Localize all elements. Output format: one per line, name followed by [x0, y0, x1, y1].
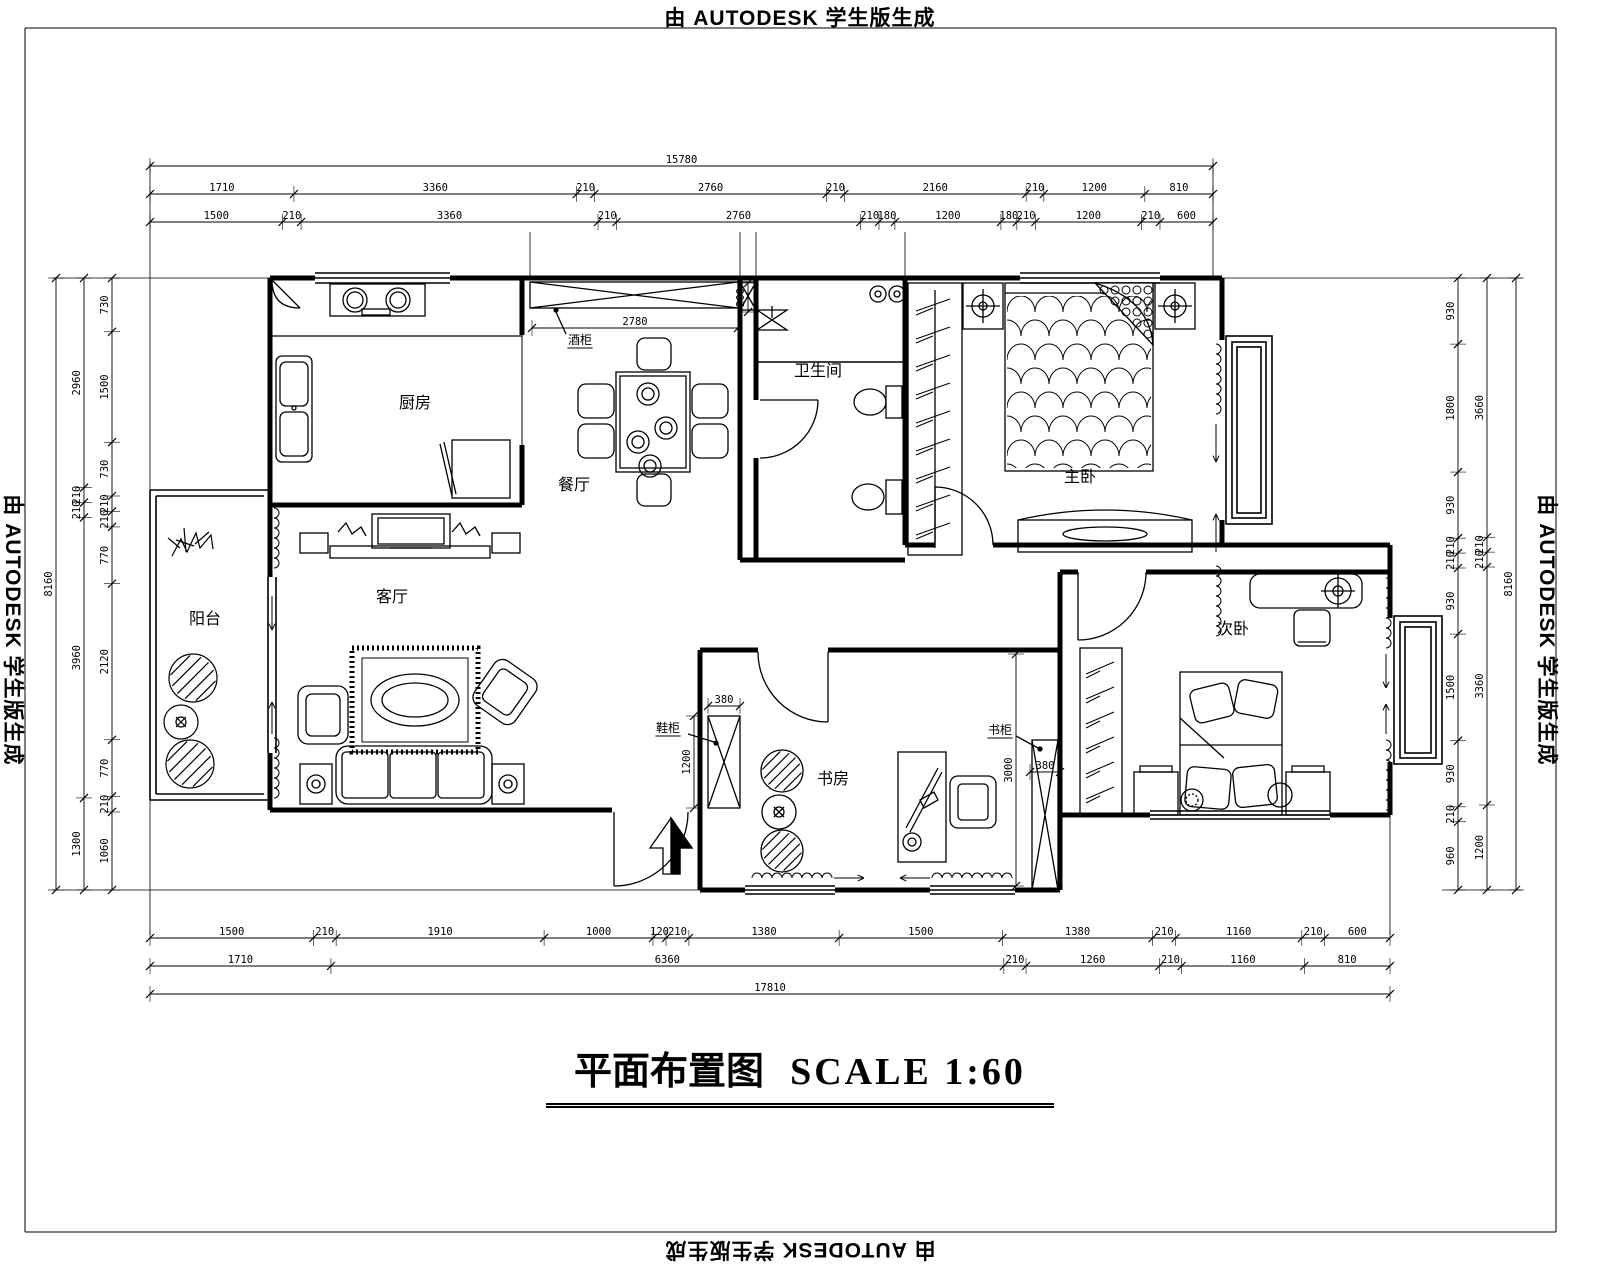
dim-label: 930: [1445, 592, 1457, 611]
dim-label: 120: [650, 926, 669, 938]
dim-line: [1086, 787, 1114, 799]
dim-label: 2120: [99, 649, 111, 674]
dim-label: 180: [999, 210, 1018, 222]
pillow: [1232, 764, 1278, 808]
dim-line: [916, 476, 933, 483]
gas-valve: [757, 306, 787, 330]
dim-label: 930: [1445, 764, 1457, 783]
dim-line: [916, 336, 933, 343]
chair-wheel: [903, 833, 921, 851]
chair: [692, 384, 728, 418]
dim-label: 210: [1005, 954, 1024, 966]
dim-label: 210: [1474, 550, 1486, 569]
keyboard: [920, 792, 938, 808]
dim-label: 2760: [698, 182, 723, 194]
dim-line: [764, 833, 789, 858]
dim-label: 210: [668, 926, 687, 938]
bathroom-door: [760, 400, 818, 458]
decor-right: [452, 523, 480, 536]
dim-line: [1086, 721, 1100, 728]
dim-label: 2780: [622, 316, 647, 328]
dim-label: 1500: [1445, 675, 1457, 700]
dim-line: [775, 844, 800, 869]
chair: [578, 424, 614, 458]
second-bedroom-door: [1078, 572, 1146, 640]
curtain-squiggle: [752, 873, 832, 878]
dim-label: 8160: [43, 571, 55, 596]
plant: [168, 528, 213, 556]
dim-line: [169, 743, 198, 772]
dim-line: [916, 439, 950, 451]
dim-line: [916, 383, 950, 395]
dim-label: 210: [826, 182, 845, 194]
dim-label: 210: [1017, 210, 1036, 222]
decor-left: [338, 523, 366, 536]
dim-line: [762, 751, 780, 769]
stove: [330, 284, 425, 316]
dim-line: [1086, 762, 1114, 774]
dim-line: [916, 308, 933, 315]
chair: [692, 424, 728, 458]
dim-line: [196, 681, 216, 701]
dim-label: 380: [1036, 760, 1055, 772]
cad-drawing-canvas: 由 AUTODESK 学生版生成 由 AUTODESK 学生版生成 由 AUTO…: [0, 0, 1600, 1280]
dim-label: 210: [282, 210, 301, 222]
dim-label: 810: [1338, 954, 1357, 966]
room-label: 客厅: [376, 588, 408, 606]
dim-label: 1260: [1080, 954, 1105, 966]
dim-label: 210: [860, 210, 879, 222]
dim-line: [1086, 671, 1100, 678]
sink: [276, 356, 312, 462]
pillow: [1188, 682, 1235, 725]
dim-line: [916, 523, 950, 535]
monitor: [906, 768, 942, 832]
dim-label: 180: [877, 210, 896, 222]
wardrobe: [1080, 648, 1122, 815]
dim-line: [172, 657, 201, 686]
dim-label: 730: [99, 460, 111, 479]
room-label: 阳台: [189, 610, 221, 628]
dim-label: 3360: [437, 210, 462, 222]
toilet-tank: [886, 386, 902, 418]
dim-line: [764, 753, 789, 778]
kitchen-window: [315, 273, 450, 283]
room-label: 厨房: [399, 394, 431, 412]
coffee-table: [371, 674, 459, 726]
dim-line: [916, 504, 933, 511]
dim-label: 1380: [1065, 926, 1090, 938]
dim-label: 6360: [655, 954, 680, 966]
dim-label: 210: [71, 500, 83, 519]
dim-line: [916, 411, 950, 423]
dim-line: [1086, 771, 1100, 778]
room-label: 次卧: [1217, 620, 1249, 638]
dim-label: 2760: [726, 210, 751, 222]
dim-label: 3360: [423, 182, 448, 194]
study-door: [758, 652, 828, 722]
dim-label: 1500: [908, 926, 933, 938]
toilet: [854, 389, 886, 415]
dim-label: 15780: [666, 154, 698, 166]
dim-label: 960: [1445, 846, 1457, 865]
dim-line: [916, 467, 950, 479]
water-heater: [870, 286, 886, 302]
dim-line: [177, 662, 208, 693]
side-table: [300, 764, 332, 804]
dim-label: 770: [99, 546, 111, 565]
dim-line: [916, 327, 950, 339]
dim-line: [167, 741, 187, 761]
dim-line: [769, 758, 796, 785]
dim-label: 1200: [1076, 210, 1101, 222]
dim-label: 210: [1026, 182, 1045, 194]
dim-line: [769, 838, 796, 865]
room-label: 书房: [817, 770, 849, 788]
dim-line: [1086, 796, 1100, 803]
dim-label: 210: [576, 182, 595, 194]
dim-label: 770: [99, 759, 111, 778]
dim-label: 1380: [751, 926, 776, 938]
entry-arrow-fill: [671, 818, 692, 874]
dim-label: 1710: [209, 182, 234, 194]
nightstand: [1286, 772, 1330, 815]
dim-label: 2160: [923, 182, 948, 194]
study-desk: [898, 752, 946, 862]
dim-line: [1086, 737, 1114, 749]
bathroom-fixtures: [740, 282, 905, 514]
bookcase-leader: [1016, 736, 1038, 748]
dim-line: [1086, 696, 1100, 703]
dim-label: 1800: [1445, 395, 1457, 420]
curtain-squiggle: [274, 508, 279, 568]
dim-label: 210: [1445, 551, 1457, 570]
dim-line: [916, 495, 950, 507]
drawing-title: 平面布置图SCALE 1:60: [546, 1040, 1054, 1108]
dim-label: 210: [1141, 210, 1160, 222]
dim-label: 1500: [204, 210, 229, 222]
dim-line: [775, 764, 800, 789]
dim-line: [1086, 712, 1114, 724]
kitchen-furniture: [270, 280, 522, 498]
master-window: [1020, 273, 1160, 283]
dim-label: 200: [735, 288, 747, 307]
desk-chair: [1294, 610, 1330, 646]
generated-annotations: 1578017103360210276021021602101200810150…: [43, 154, 1524, 1002]
dim-line: [193, 767, 213, 787]
dim-label: 3660: [1474, 395, 1486, 420]
dim-label: 1160: [1230, 954, 1255, 966]
title-text: 平面布置图: [574, 1051, 764, 1093]
tv: [372, 514, 450, 548]
room-label: 主卧: [1064, 468, 1096, 486]
dim-label: 1500: [99, 374, 111, 399]
title-scale: SCALE 1:60: [790, 1051, 1026, 1093]
dim-label: 1300: [71, 831, 83, 856]
room-label: 餐厅: [558, 476, 590, 494]
pillow: [1184, 766, 1231, 810]
room-label: 卫生间: [794, 362, 842, 380]
master-bay-window: [1226, 336, 1272, 524]
dim-line: [784, 853, 802, 871]
dim-label: 210: [315, 926, 334, 938]
dim-label: 930: [1445, 496, 1457, 515]
lamp: [499, 775, 517, 793]
chair: [578, 384, 614, 418]
nightstand: [1134, 772, 1178, 815]
curtain-squiggle: [274, 738, 279, 798]
dim-label: 1200: [1082, 182, 1107, 194]
dim-label: 1200: [1474, 835, 1486, 860]
dim-line: [1086, 746, 1100, 753]
dim-label: 210: [598, 210, 617, 222]
dim-line: [182, 756, 211, 785]
dim-label: 1000: [586, 926, 611, 938]
living-furniture: [298, 514, 541, 804]
dim-label: 210: [1445, 805, 1457, 824]
dim-label: 17810: [754, 982, 786, 994]
dim-label: 600: [1348, 926, 1367, 938]
bed: [1180, 672, 1282, 815]
dim-label: 1910: [427, 926, 452, 938]
dim-line: [916, 392, 933, 399]
chair: [637, 474, 671, 506]
corner-shelf: [272, 280, 300, 308]
dim-label: 600: [1177, 210, 1196, 222]
dining-table: [616, 372, 690, 472]
second-bay-window: [1394, 616, 1442, 764]
dim-label: 810: [1169, 182, 1188, 194]
dim-label: 1710: [228, 954, 253, 966]
dim-label: 210: [1304, 926, 1323, 938]
dim-label: 210: [99, 795, 111, 814]
dim-line: [784, 773, 802, 791]
dim-label: 3360: [1474, 673, 1486, 698]
dim-line: [762, 831, 780, 849]
dim-label: 2960: [71, 370, 83, 395]
dim-line: [916, 532, 933, 539]
dim-line: [916, 448, 933, 455]
dim-line: [916, 355, 950, 367]
chair: [637, 338, 671, 370]
dim-label: 3000: [1003, 757, 1015, 782]
wine-cabinet-leader: [556, 312, 566, 334]
dim-line: [916, 420, 933, 427]
dim-label: 210: [1155, 926, 1174, 938]
dim-line: [170, 655, 190, 675]
dim-label: 1200: [935, 210, 960, 222]
dim-label: 1060: [99, 838, 111, 863]
dim-label: 1200: [681, 749, 693, 774]
curtain-squiggle: [932, 873, 1012, 878]
dim-label: 930: [1445, 302, 1457, 321]
dim-label: 210: [99, 510, 111, 529]
dim-label: 210: [1161, 954, 1180, 966]
dim-label: 3960: [71, 645, 83, 670]
pillow: [1233, 678, 1279, 719]
sofa: [336, 746, 492, 804]
dim-label: 8160: [1503, 571, 1515, 596]
dim-label: 380: [715, 694, 734, 706]
dim-label: 730: [99, 295, 111, 314]
dim-line: [185, 670, 214, 699]
study-furniture: [650, 716, 1058, 890]
dim-label: 1500: [219, 926, 244, 938]
balcony-furniture: [164, 528, 217, 788]
dim-line: [174, 748, 205, 779]
dim-line: [916, 299, 950, 311]
dim-label: 1160: [1226, 926, 1251, 938]
annotation-label: 鞋柜: [656, 720, 680, 735]
master-door: [935, 487, 993, 545]
dim-line: [1086, 687, 1114, 699]
lamp: [307, 775, 325, 793]
dim-line: [916, 364, 933, 371]
annotation-label: 书柜: [988, 723, 1012, 737]
dim-line: [1086, 662, 1114, 674]
curtain-squiggle: [1216, 344, 1221, 414]
fridge: [452, 440, 510, 498]
side-table: [492, 764, 524, 804]
annotation-label: 酒柜: [568, 333, 592, 347]
